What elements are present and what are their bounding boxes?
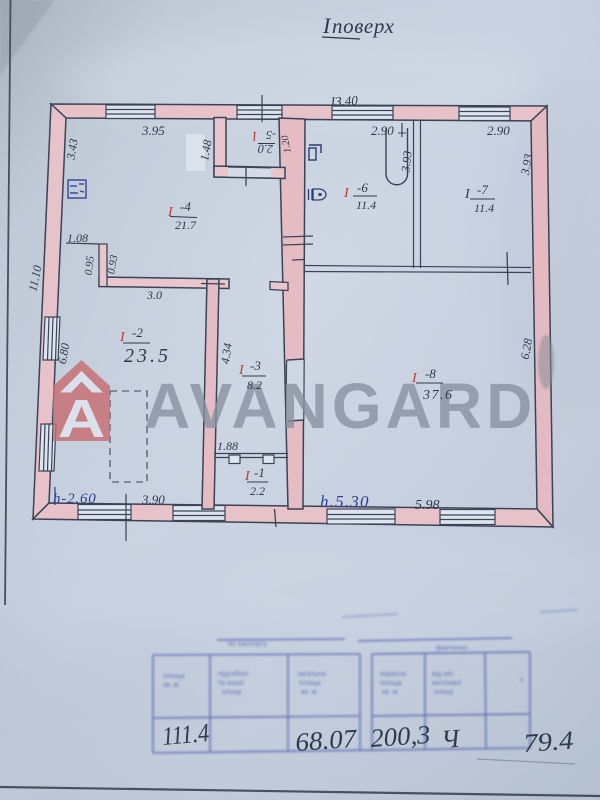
svg-text:11.4: 11.4 xyxy=(356,198,376,212)
svg-text:111.4: 111.4 xyxy=(161,718,210,751)
svg-text:площа: площа xyxy=(299,680,321,687)
svg-text:0.95: 0.95 xyxy=(83,255,97,276)
svg-text:-8: -8 xyxy=(425,366,436,381)
svg-text:загальна: загальна xyxy=(297,671,326,678)
svg-text:-4: -4 xyxy=(180,199,191,214)
svg-text:3.90: 3.90 xyxy=(141,492,165,507)
svg-text:площа: площа xyxy=(163,673,185,680)
svg-text:5.98: 5.98 xyxy=(415,498,440,513)
svg-text:11.4: 11.4 xyxy=(474,201,494,215)
svg-text:2.0: 2.0 xyxy=(258,142,273,157)
svg-text:житлової: житлової xyxy=(432,680,461,687)
svg-text:3.0: 3.0 xyxy=(146,288,162,302)
svg-text:37.6: 37.6 xyxy=(422,388,454,403)
svg-text:1.08: 1.08 xyxy=(67,231,88,245)
svg-text:площа: площа xyxy=(380,680,402,687)
svg-text:A: A xyxy=(58,388,106,449)
svg-text:площі: площі xyxy=(434,688,454,696)
svg-text:4.34: 4.34 xyxy=(218,342,235,365)
svg-text:23.5: 23.5 xyxy=(124,345,171,367)
svg-text:ІЗ.40: ІЗ.40 xyxy=(329,93,358,109)
svg-text:по паспорту: по паспорту xyxy=(228,641,268,648)
svg-text:AVANGARD: AVANGARD xyxy=(144,370,536,442)
svg-text:2.2: 2.2 xyxy=(250,484,265,498)
svg-text:h-2.60: h-2.60 xyxy=(53,491,97,507)
svg-text:21.7: 21.7 xyxy=(175,218,197,232)
svg-text:200,3: 200,3 xyxy=(369,720,431,753)
svg-text:-2: -2 xyxy=(132,325,143,340)
svg-text:-6: -6 xyxy=(357,180,368,195)
svg-text:підсобної: підсобної xyxy=(218,670,249,678)
svg-text:3.95: 3.95 xyxy=(141,123,165,138)
svg-text:площі: площі xyxy=(222,688,242,696)
svg-text:2.90: 2.90 xyxy=(371,123,394,138)
svg-text:від неї: від неї xyxy=(432,670,453,678)
svg-text:2.90: 2.90 xyxy=(487,123,510,138)
svg-text:79.4: 79.4 xyxy=(522,726,574,758)
svg-text:фактично: фактично xyxy=(436,645,467,652)
svg-text:корисна: корисна xyxy=(380,671,406,678)
svg-text:-7: -7 xyxy=(477,182,488,197)
svg-text:-1: -1 xyxy=(254,465,265,480)
svg-text:кв. м: кв. м xyxy=(163,682,179,689)
svg-text:-5: -5 xyxy=(266,128,276,142)
svg-text:кв. м.: кв. м. xyxy=(382,689,399,696)
svg-text:68.07: 68.07 xyxy=(294,724,358,757)
svg-text:1.88: 1.88 xyxy=(217,439,238,453)
svg-text:h.5.30: h.5.30 xyxy=(320,492,370,511)
svg-text:поверх: поверх xyxy=(332,14,395,38)
svg-text:8.2: 8.2 xyxy=(247,378,262,392)
svg-text:3.93: 3.93 xyxy=(398,150,414,173)
svg-text:-3: -3 xyxy=(250,358,261,373)
svg-text:кв. м.: кв. м. xyxy=(301,689,318,696)
svg-text:та іншої: та іншої xyxy=(218,679,244,687)
